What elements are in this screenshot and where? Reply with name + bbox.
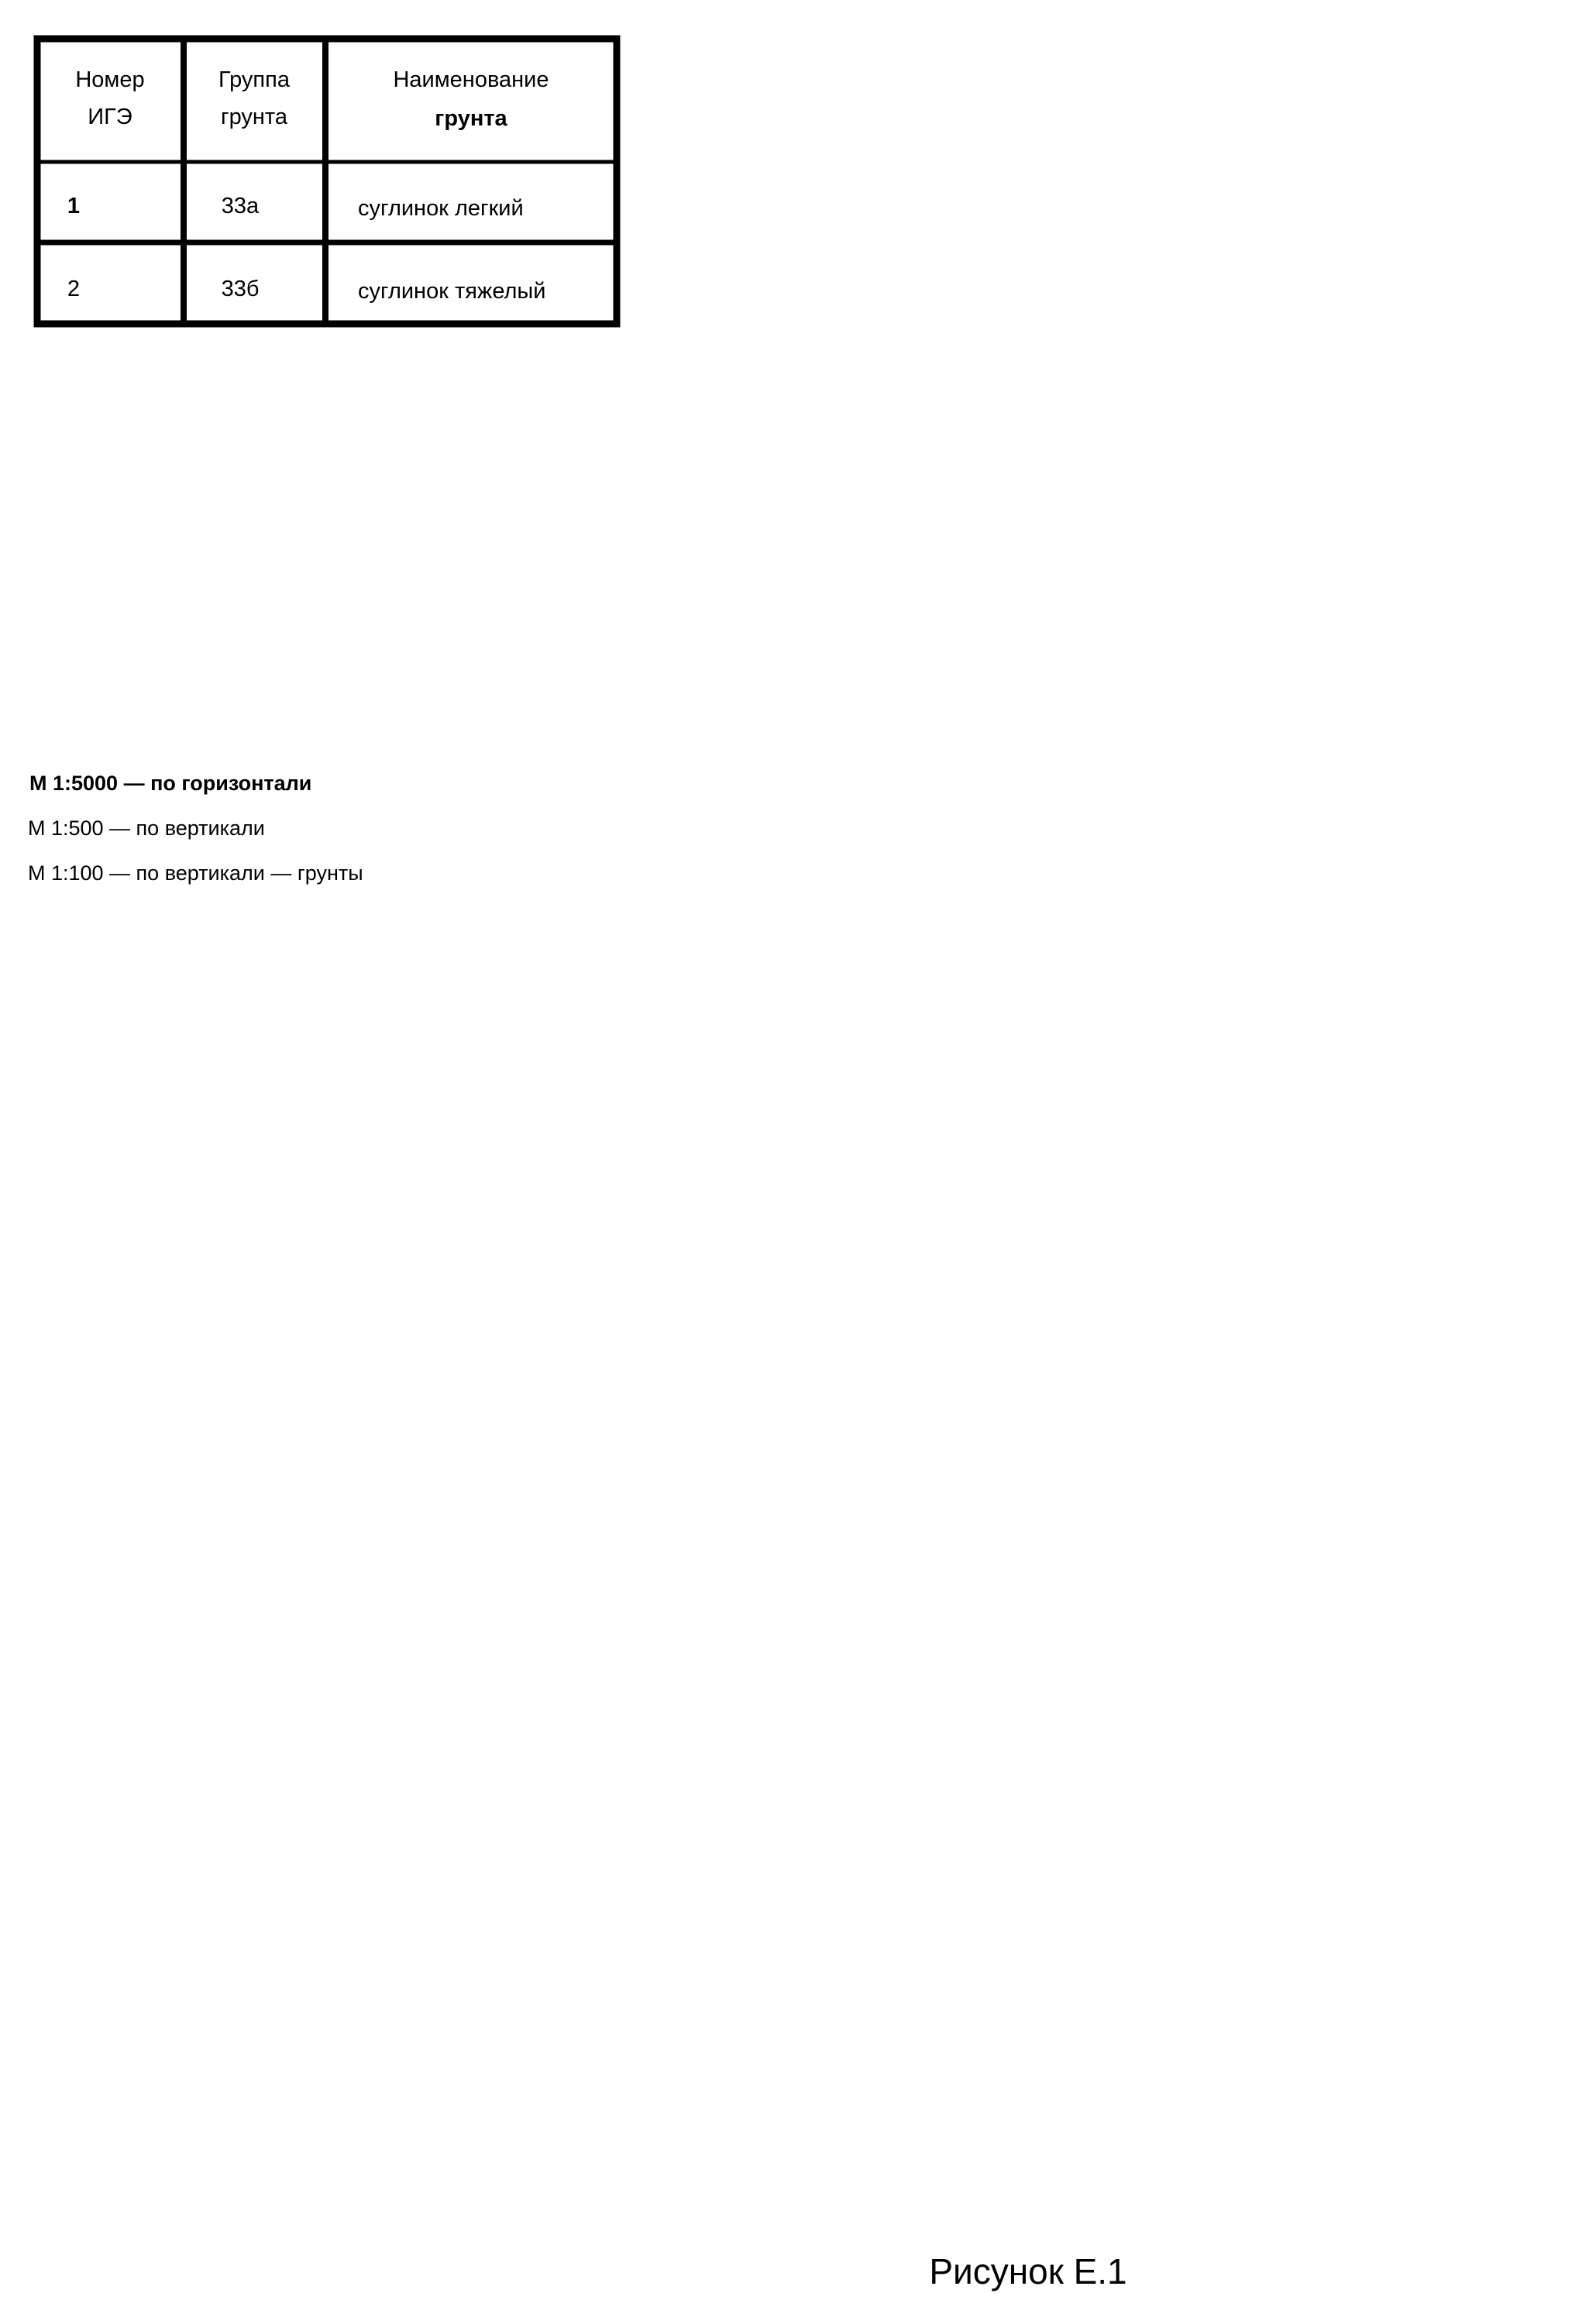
svg-text:суглинок легкий: суглинок легкий [358, 196, 524, 221]
svg-text:1: 1 [67, 194, 80, 218]
svg-text:ИГЭ: ИГЭ [88, 105, 132, 129]
svg-text:33б: 33б [222, 277, 260, 301]
svg-text:М 1:500 — по вертикали: М 1:500 — по вертикали [28, 816, 265, 840]
svg-text:грунта: грунта [221, 105, 288, 129]
svg-text:М 1:100 — по вертикали — грунт: М 1:100 — по вертикали — грунты [28, 861, 363, 885]
svg-text:Номер: Номер [75, 67, 144, 92]
svg-text:Группа: Группа [218, 67, 291, 92]
svg-text:суглинок тяжелый: суглинок тяжелый [358, 279, 545, 304]
svg-text:Наименование: Наименование [393, 67, 549, 92]
svg-text:2: 2 [67, 277, 80, 301]
svg-text:Рисунок Е.1: Рисунок Е.1 [929, 2251, 1126, 2291]
svg-text:33а: 33а [222, 194, 260, 218]
svg-text:М 1:5000 — по горизонтали: М 1:5000 — по горизонтали [29, 772, 311, 795]
svg-text:грунта: грунта [435, 106, 507, 131]
